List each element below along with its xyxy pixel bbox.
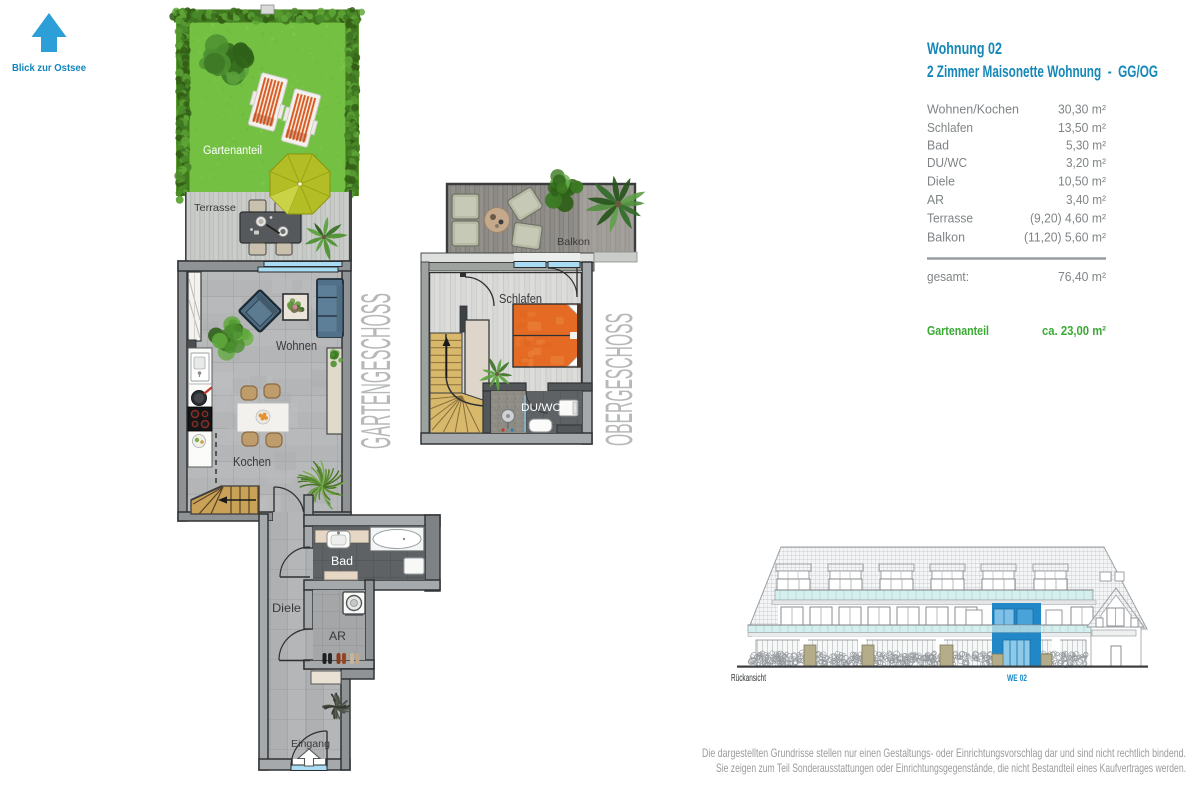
svg-text:OBERGESCHOSS: OBERGESCHOSS: [599, 313, 641, 446]
svg-text:Blick zur Ostsee: Blick zur Ostsee: [12, 62, 86, 74]
svg-text:3,20 m²: 3,20 m²: [1066, 155, 1107, 170]
svg-text:Bad: Bad: [331, 556, 353, 568]
svg-text:Terrasse: Terrasse: [194, 202, 236, 214]
svg-text:AR: AR: [927, 192, 944, 207]
svg-text:Diele: Diele: [927, 174, 955, 189]
svg-text:AR: AR: [329, 631, 346, 643]
svg-text:DU/WC: DU/WC: [927, 155, 967, 170]
svg-text:13,50 m²: 13,50 m²: [1058, 120, 1107, 135]
svg-text:Die dargestellten Grundrisse s: Die dargestellten Grundrisse stellen nur…: [702, 746, 1186, 760]
svg-text:(9,20) 4,60 m²: (9,20) 4,60 m²: [1030, 211, 1107, 226]
svg-text:(11,20) 5,60 m²: (11,20) 5,60 m²: [1024, 230, 1107, 245]
svg-text:10,50 m²: 10,50 m²: [1058, 174, 1107, 189]
svg-text:Wohnen/Kochen: Wohnen/Kochen: [927, 102, 1019, 117]
svg-text:GARTENGESCHOSS: GARTENGESCHOSS: [352, 293, 399, 449]
svg-text:Terrasse: Terrasse: [927, 211, 973, 226]
svg-text:30,30 m²: 30,30 m²: [1058, 102, 1107, 117]
svg-text:Schlafen: Schlafen: [927, 120, 973, 135]
svg-text:WE 02: WE 02: [1007, 673, 1027, 684]
svg-text:Kochen: Kochen: [233, 455, 271, 469]
svg-text:Gartenanteil: Gartenanteil: [203, 145, 262, 157]
svg-text:2 Zimmer Maisonette Wohnung -: 2 Zimmer Maisonette Wohnung - GG/OG: [927, 62, 1158, 81]
svg-text:Diele: Diele: [272, 601, 301, 615]
svg-text:5,30 m²: 5,30 m²: [1066, 138, 1107, 153]
svg-text:Bad: Bad: [927, 138, 949, 153]
svg-text:76,40 m²: 76,40 m²: [1058, 269, 1107, 284]
svg-text:ca. 23,00 m²: ca. 23,00 m²: [1042, 323, 1107, 338]
svg-text:gesamt:: gesamt:: [927, 269, 969, 284]
svg-text:Rückansicht: Rückansicht: [731, 673, 766, 684]
svg-text:Wohnung 02: Wohnung 02: [927, 39, 1002, 58]
svg-text:Balkon: Balkon: [927, 230, 965, 245]
svg-text:DU/WC: DU/WC: [521, 402, 561, 414]
svg-text:3,40 m²: 3,40 m²: [1066, 192, 1107, 207]
svg-text:Gartenanteil: Gartenanteil: [927, 323, 989, 338]
svg-text:Balkon: Balkon: [557, 236, 590, 248]
svg-text:Wohnen: Wohnen: [276, 339, 317, 353]
svg-text:Sie zeigen zum Teil Sonderauss: Sie zeigen zum Teil Sonderausstattungen …: [716, 761, 1186, 775]
